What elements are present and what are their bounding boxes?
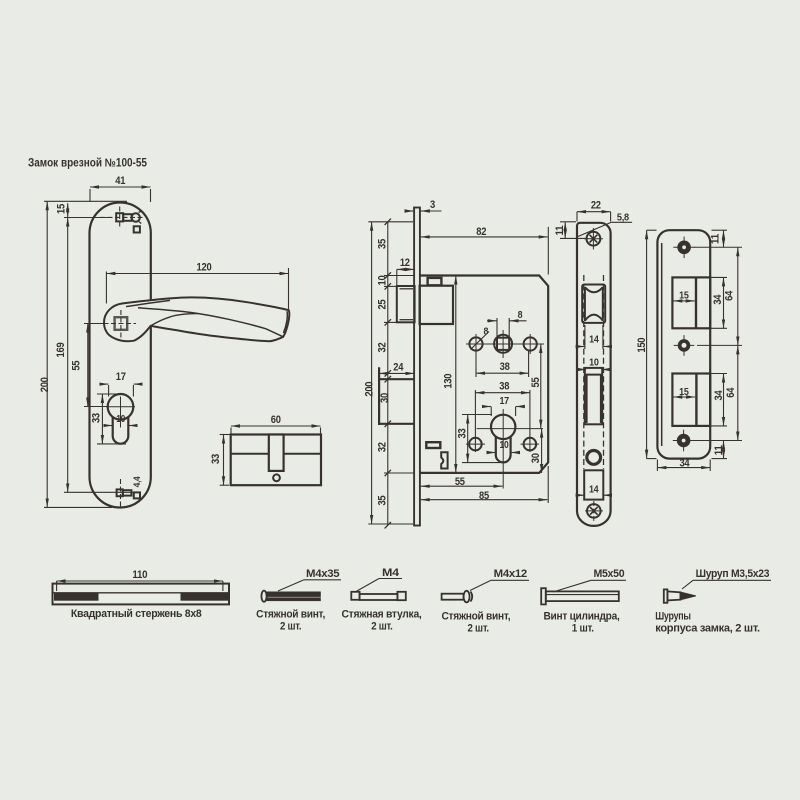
svg-text:M4: M4 (382, 567, 400, 579)
svg-text:10: 10 (116, 414, 126, 425)
svg-text:15: 15 (679, 386, 689, 398)
svg-text:38: 38 (499, 380, 509, 392)
svg-text:34: 34 (712, 294, 724, 305)
svg-text:2 шт.: 2 шт. (280, 621, 302, 633)
svg-text:64: 64 (725, 387, 737, 398)
svg-text:12: 12 (400, 257, 410, 269)
svg-text:200: 200 (364, 382, 376, 397)
svg-text:2 шт.: 2 шт. (371, 621, 393, 633)
svg-text:14: 14 (589, 484, 599, 496)
svg-text:10: 10 (589, 357, 599, 369)
svg-text:Стяжной винт,: Стяжной винт, (441, 611, 510, 623)
svg-text:22: 22 (591, 200, 601, 212)
svg-text:32: 32 (377, 442, 389, 452)
svg-text:M4x35: M4x35 (306, 568, 339, 580)
svg-text:M5x50: M5x50 (593, 568, 624, 580)
svg-text:33: 33 (456, 428, 468, 438)
svg-text:10: 10 (377, 275, 389, 285)
svg-text:Замок врезной №100-55: Замок врезной №100-55 (28, 157, 148, 169)
svg-text:Винт цилиндра,: Винт цилиндра, (544, 611, 620, 623)
svg-text:35: 35 (377, 239, 389, 249)
svg-text:11: 11 (710, 234, 722, 244)
svg-text:11: 11 (713, 445, 725, 455)
svg-text:Стяжная втулка,: Стяжная втулка, (342, 609, 422, 621)
svg-text:60: 60 (271, 414, 281, 426)
svg-text:85: 85 (479, 490, 489, 502)
svg-text:41: 41 (115, 175, 125, 187)
svg-text:32: 32 (377, 342, 389, 352)
svg-text:2 шт.: 2 шт. (468, 623, 490, 635)
svg-text:82: 82 (476, 226, 486, 238)
svg-text:8: 8 (518, 309, 523, 321)
svg-text:1 шт.: 1 шт. (572, 623, 594, 635)
svg-text:Шуруп M3,5x23: Шуруп M3,5x23 (696, 568, 770, 580)
svg-text:Шурупы: Шурупы (655, 611, 691, 623)
svg-text:25: 25 (377, 299, 389, 309)
svg-text:130: 130 (443, 374, 455, 389)
svg-text:15: 15 (55, 204, 67, 214)
svg-text:55: 55 (530, 377, 542, 387)
svg-text:34: 34 (679, 458, 690, 470)
svg-text:30: 30 (530, 453, 542, 463)
svg-text:15: 15 (679, 289, 689, 301)
svg-text:24: 24 (393, 362, 404, 374)
svg-text:3: 3 (430, 199, 435, 211)
svg-text:17: 17 (116, 371, 126, 383)
svg-text:Квадратный стержень 8x8: Квадратный стержень 8x8 (71, 608, 202, 620)
svg-text:110: 110 (132, 569, 147, 581)
svg-text:34: 34 (713, 390, 725, 401)
svg-text:35: 35 (377, 495, 389, 505)
svg-text:30: 30 (379, 393, 391, 403)
svg-text:120: 120 (197, 262, 212, 274)
svg-text:8: 8 (483, 326, 488, 338)
svg-text:4,4: 4,4 (132, 476, 143, 488)
svg-text:M4x12: M4x12 (494, 568, 527, 580)
svg-text:33: 33 (91, 413, 103, 423)
svg-text:Стяжной винт,: Стяжной винт, (256, 609, 325, 621)
svg-text:38: 38 (500, 361, 510, 373)
svg-text:33: 33 (210, 454, 222, 464)
svg-text:11: 11 (554, 225, 566, 235)
svg-text:55: 55 (455, 476, 465, 488)
svg-text:200: 200 (39, 377, 51, 392)
svg-text:150: 150 (636, 338, 648, 353)
svg-text:10: 10 (500, 440, 510, 451)
svg-text:169: 169 (55, 342, 67, 357)
svg-text:64: 64 (724, 290, 736, 301)
svg-text:корпуса замка, 2 шт.: корпуса замка, 2 шт. (655, 623, 760, 635)
svg-text:17: 17 (499, 395, 509, 407)
svg-text:14: 14 (589, 334, 599, 346)
svg-text:55: 55 (71, 361, 83, 371)
